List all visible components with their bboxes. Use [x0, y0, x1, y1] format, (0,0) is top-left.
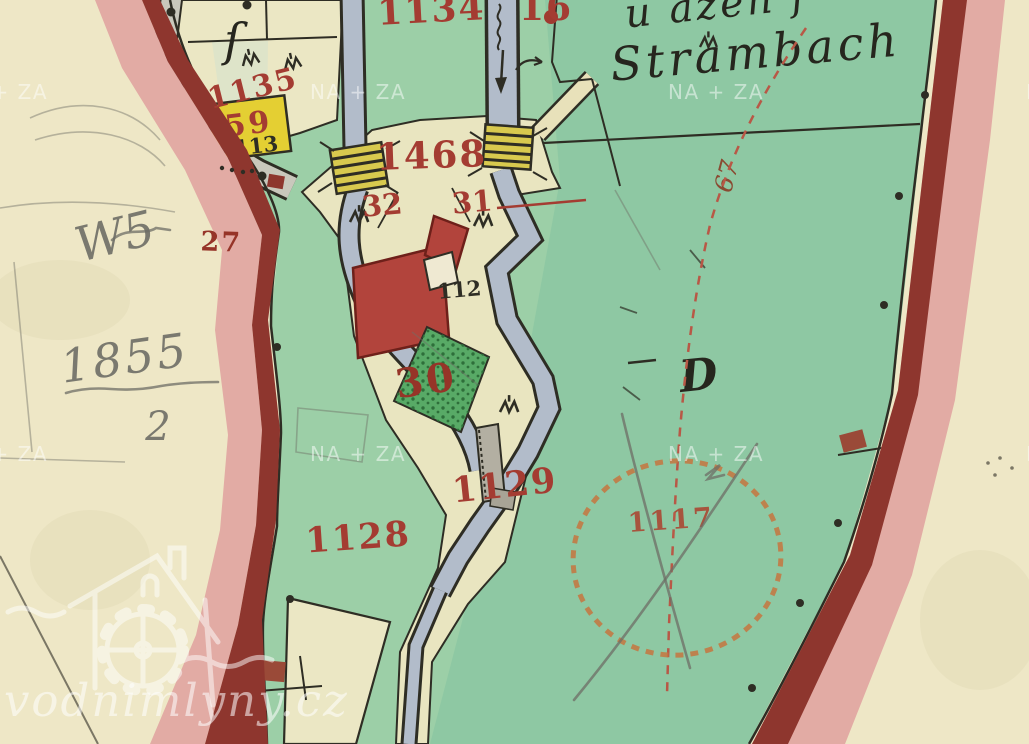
parcel-1117: 1117 [627, 502, 716, 539]
parcel-16: 16 [519, 0, 573, 29]
site-logo-text: vodnimlyny.cz [4, 674, 349, 727]
parcel-27: 27 [200, 226, 243, 258]
parcel-32: 32 [361, 186, 404, 223]
parcel-1128: 1128 [304, 513, 412, 561]
pencil-denominator: 2 [144, 404, 170, 450]
parcel-112: 112 [436, 275, 482, 304]
watermark-text: NA + ZA [0, 80, 48, 104]
letter-d: D [675, 348, 720, 403]
watermark-text: NA + ZA [0, 442, 48, 466]
cadastral-map: 59 113 [0, 0, 1029, 744]
watermark-text: NA + ZA [310, 442, 406, 466]
watermark-text: NA + ZA [668, 80, 764, 104]
parcel-1468: 1468 [375, 131, 487, 179]
watermark-text: NA + ZA [310, 80, 406, 104]
parcel-31: 31 [451, 183, 494, 220]
watermark-text: NA + ZA [668, 442, 764, 466]
bridge-east [483, 124, 534, 169]
map-canvas: 59 113 [0, 0, 1029, 744]
parcel-1134: 1134 [376, 0, 486, 34]
